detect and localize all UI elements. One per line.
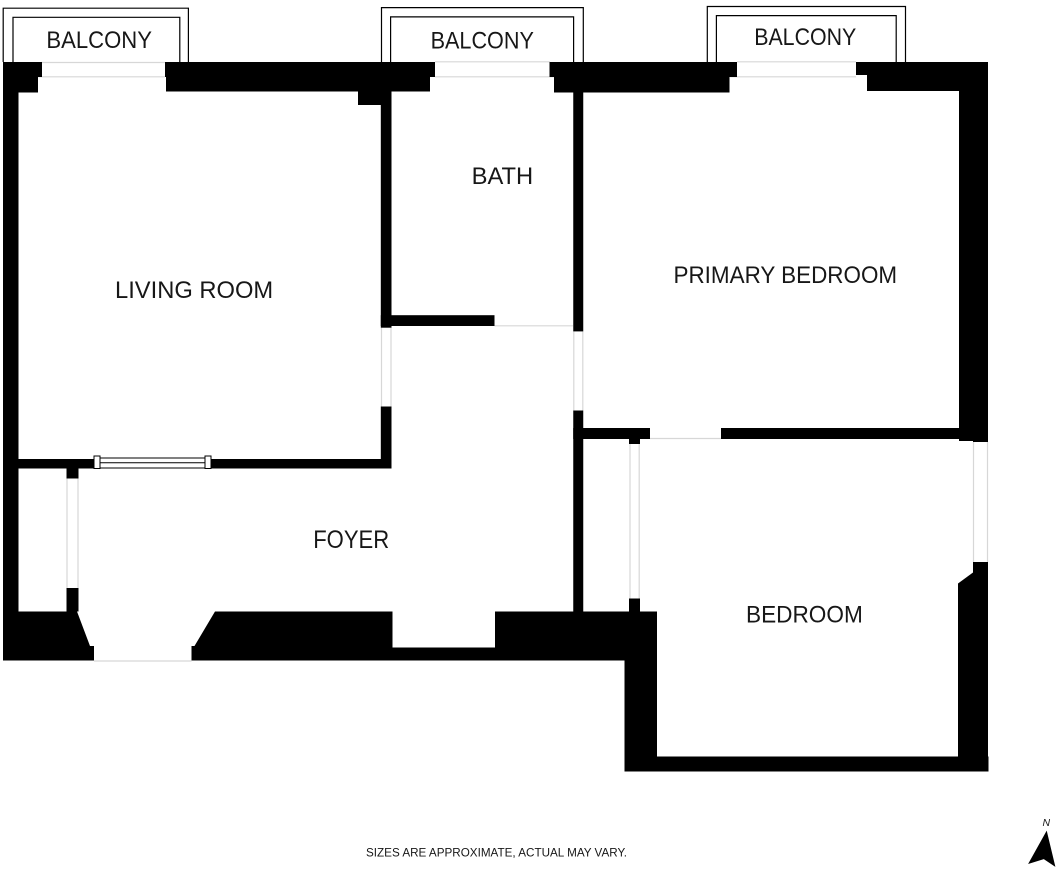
svg-text:LIVING ROOM: LIVING ROOM [115,277,273,304]
svg-text:PRIMARY BEDROOM: PRIMARY BEDROOM [674,262,898,289]
svg-text:BALCONY: BALCONY [431,28,534,55]
svg-text:BATH: BATH [472,163,534,190]
svg-text:N: N [1043,817,1051,829]
svg-text:FOYER: FOYER [313,526,389,554]
svg-text:BALCONY: BALCONY [46,27,152,54]
svg-text:BALCONY: BALCONY [754,24,856,51]
svg-text:BEDROOM: BEDROOM [746,601,863,628]
svg-text:SIZES ARE APPROXIMATE, ACTUAL: SIZES ARE APPROXIMATE, ACTUAL MAY VARY. [366,846,627,860]
